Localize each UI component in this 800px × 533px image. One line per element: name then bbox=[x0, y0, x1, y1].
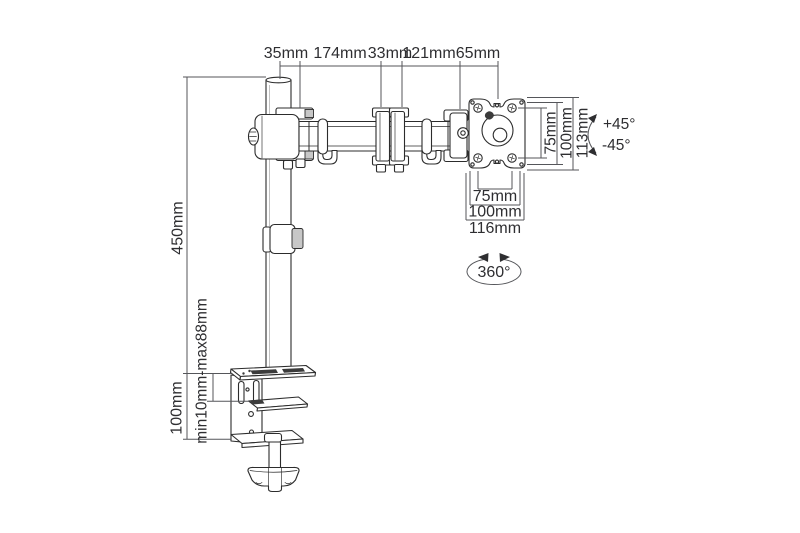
dim-plate-height-label: 113mm bbox=[574, 108, 591, 159]
dim-pole-height-label: 450mm bbox=[170, 201, 187, 254]
dim-head-offset-label: 65mm bbox=[456, 45, 500, 62]
dim-arm2-length-label: 121mm bbox=[402, 45, 455, 62]
dim-vesa-100-vertical-label: 100mm bbox=[558, 107, 575, 159]
dim-vesa-100-horizontal-label: 100mm bbox=[468, 204, 521, 221]
dim-plate-width-label: 116mm bbox=[469, 220, 521, 237]
swivel-360-label: 360° bbox=[477, 264, 510, 281]
corner-hole bbox=[520, 163, 523, 166]
clamp-slot bbox=[254, 381, 260, 403]
desk-clamp bbox=[231, 366, 316, 492]
clamp-hole bbox=[249, 412, 254, 417]
dim-clamp-range-label: min10mm-max88mm bbox=[193, 298, 210, 444]
monitor-arm-technical-drawing: 35mm 174mm 33mm 121mm 65mm 450mm 100mm m… bbox=[0, 0, 800, 533]
pivot-inner bbox=[461, 131, 465, 135]
pole-cable-collar bbox=[263, 225, 303, 254]
collar-cap bbox=[292, 229, 303, 249]
rotation-annotation: 360° bbox=[467, 253, 521, 285]
dim-vesa-75-vertical-label: 75mm bbox=[542, 111, 559, 154]
tab-hole bbox=[495, 160, 498, 163]
bolt-tab bbox=[377, 165, 386, 173]
dimensions-vesa-horizontal: 75mm 100mm 116mm bbox=[466, 171, 524, 237]
dim-arm1-length-label: 174mm bbox=[313, 45, 366, 62]
corner-hole bbox=[471, 163, 474, 166]
joint-plate bbox=[391, 112, 405, 162]
bolt-tip bbox=[305, 151, 314, 160]
screw-boss bbox=[265, 434, 282, 443]
tilt-boss-hole bbox=[493, 128, 507, 142]
bolt-tab bbox=[284, 161, 293, 170]
dimensions-top: 35mm 174mm 33mm 121mm 65mm bbox=[264, 45, 500, 109]
dim-pole-offset-label: 35mm bbox=[264, 45, 308, 62]
clamp-slot bbox=[239, 382, 245, 404]
bolt-tab bbox=[395, 165, 404, 173]
pole-bracket-body bbox=[255, 115, 299, 160]
tilt-up-label: +45° bbox=[603, 116, 636, 133]
corner-hole bbox=[520, 101, 523, 104]
tilt-down-label: -45° bbox=[602, 137, 631, 154]
clip-band bbox=[318, 119, 328, 154]
clamp-screw-shaft bbox=[269, 442, 281, 469]
dim-clamp-height-label: 100mm bbox=[169, 381, 186, 434]
joint-plate bbox=[376, 112, 390, 162]
clamp-hole bbox=[246, 388, 249, 391]
pole-top-cap bbox=[266, 77, 291, 83]
dim-vesa-75-horizontal-label: 75mm bbox=[473, 188, 517, 205]
clip-band bbox=[422, 119, 432, 154]
dimensions-vesa-vertical: 75mm 100mm 113mm bbox=[518, 98, 591, 171]
corner-hole bbox=[471, 101, 474, 104]
plate-dot bbox=[248, 370, 250, 372]
bolt-tab bbox=[296, 159, 305, 168]
collar-block bbox=[270, 225, 295, 254]
tab-hole bbox=[495, 104, 498, 107]
arm-middle-joint bbox=[373, 108, 409, 172]
plate-dot bbox=[242, 372, 244, 374]
bolt-tip bbox=[305, 110, 314, 118]
tilt-annotation: +45° -45° bbox=[588, 114, 636, 156]
